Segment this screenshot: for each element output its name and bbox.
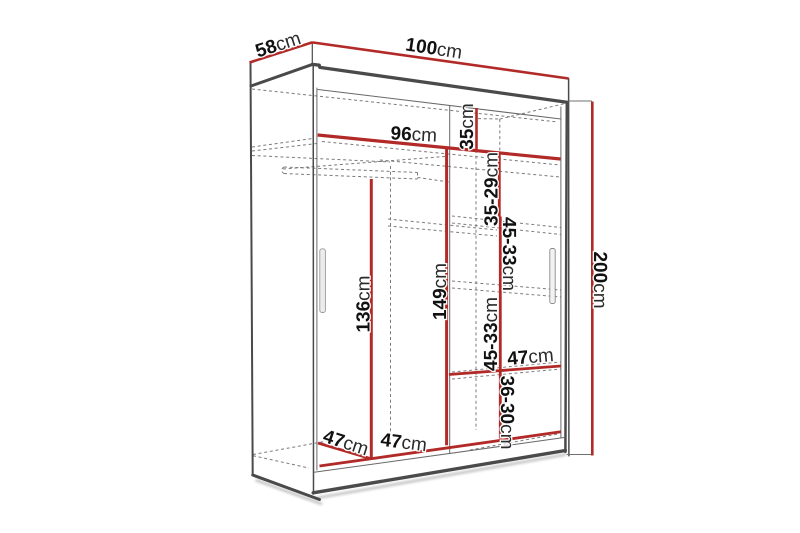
svg-text:96cm: 96cm xyxy=(390,123,438,146)
svg-text:200cm: 200cm xyxy=(589,251,610,308)
svg-text:35cm: 35cm xyxy=(457,103,478,149)
svg-text:35-29cm: 35-29cm xyxy=(481,152,502,226)
svg-text:47cm: 47cm xyxy=(506,345,554,370)
svg-text:149cm: 149cm xyxy=(430,263,451,320)
svg-text:45-33cm: 45-33cm xyxy=(481,297,502,371)
svg-text:45-33cm: 45-33cm xyxy=(498,217,519,291)
svg-text:136cm: 136cm xyxy=(353,275,374,332)
svg-text:36-30cm: 36-30cm xyxy=(496,376,517,450)
